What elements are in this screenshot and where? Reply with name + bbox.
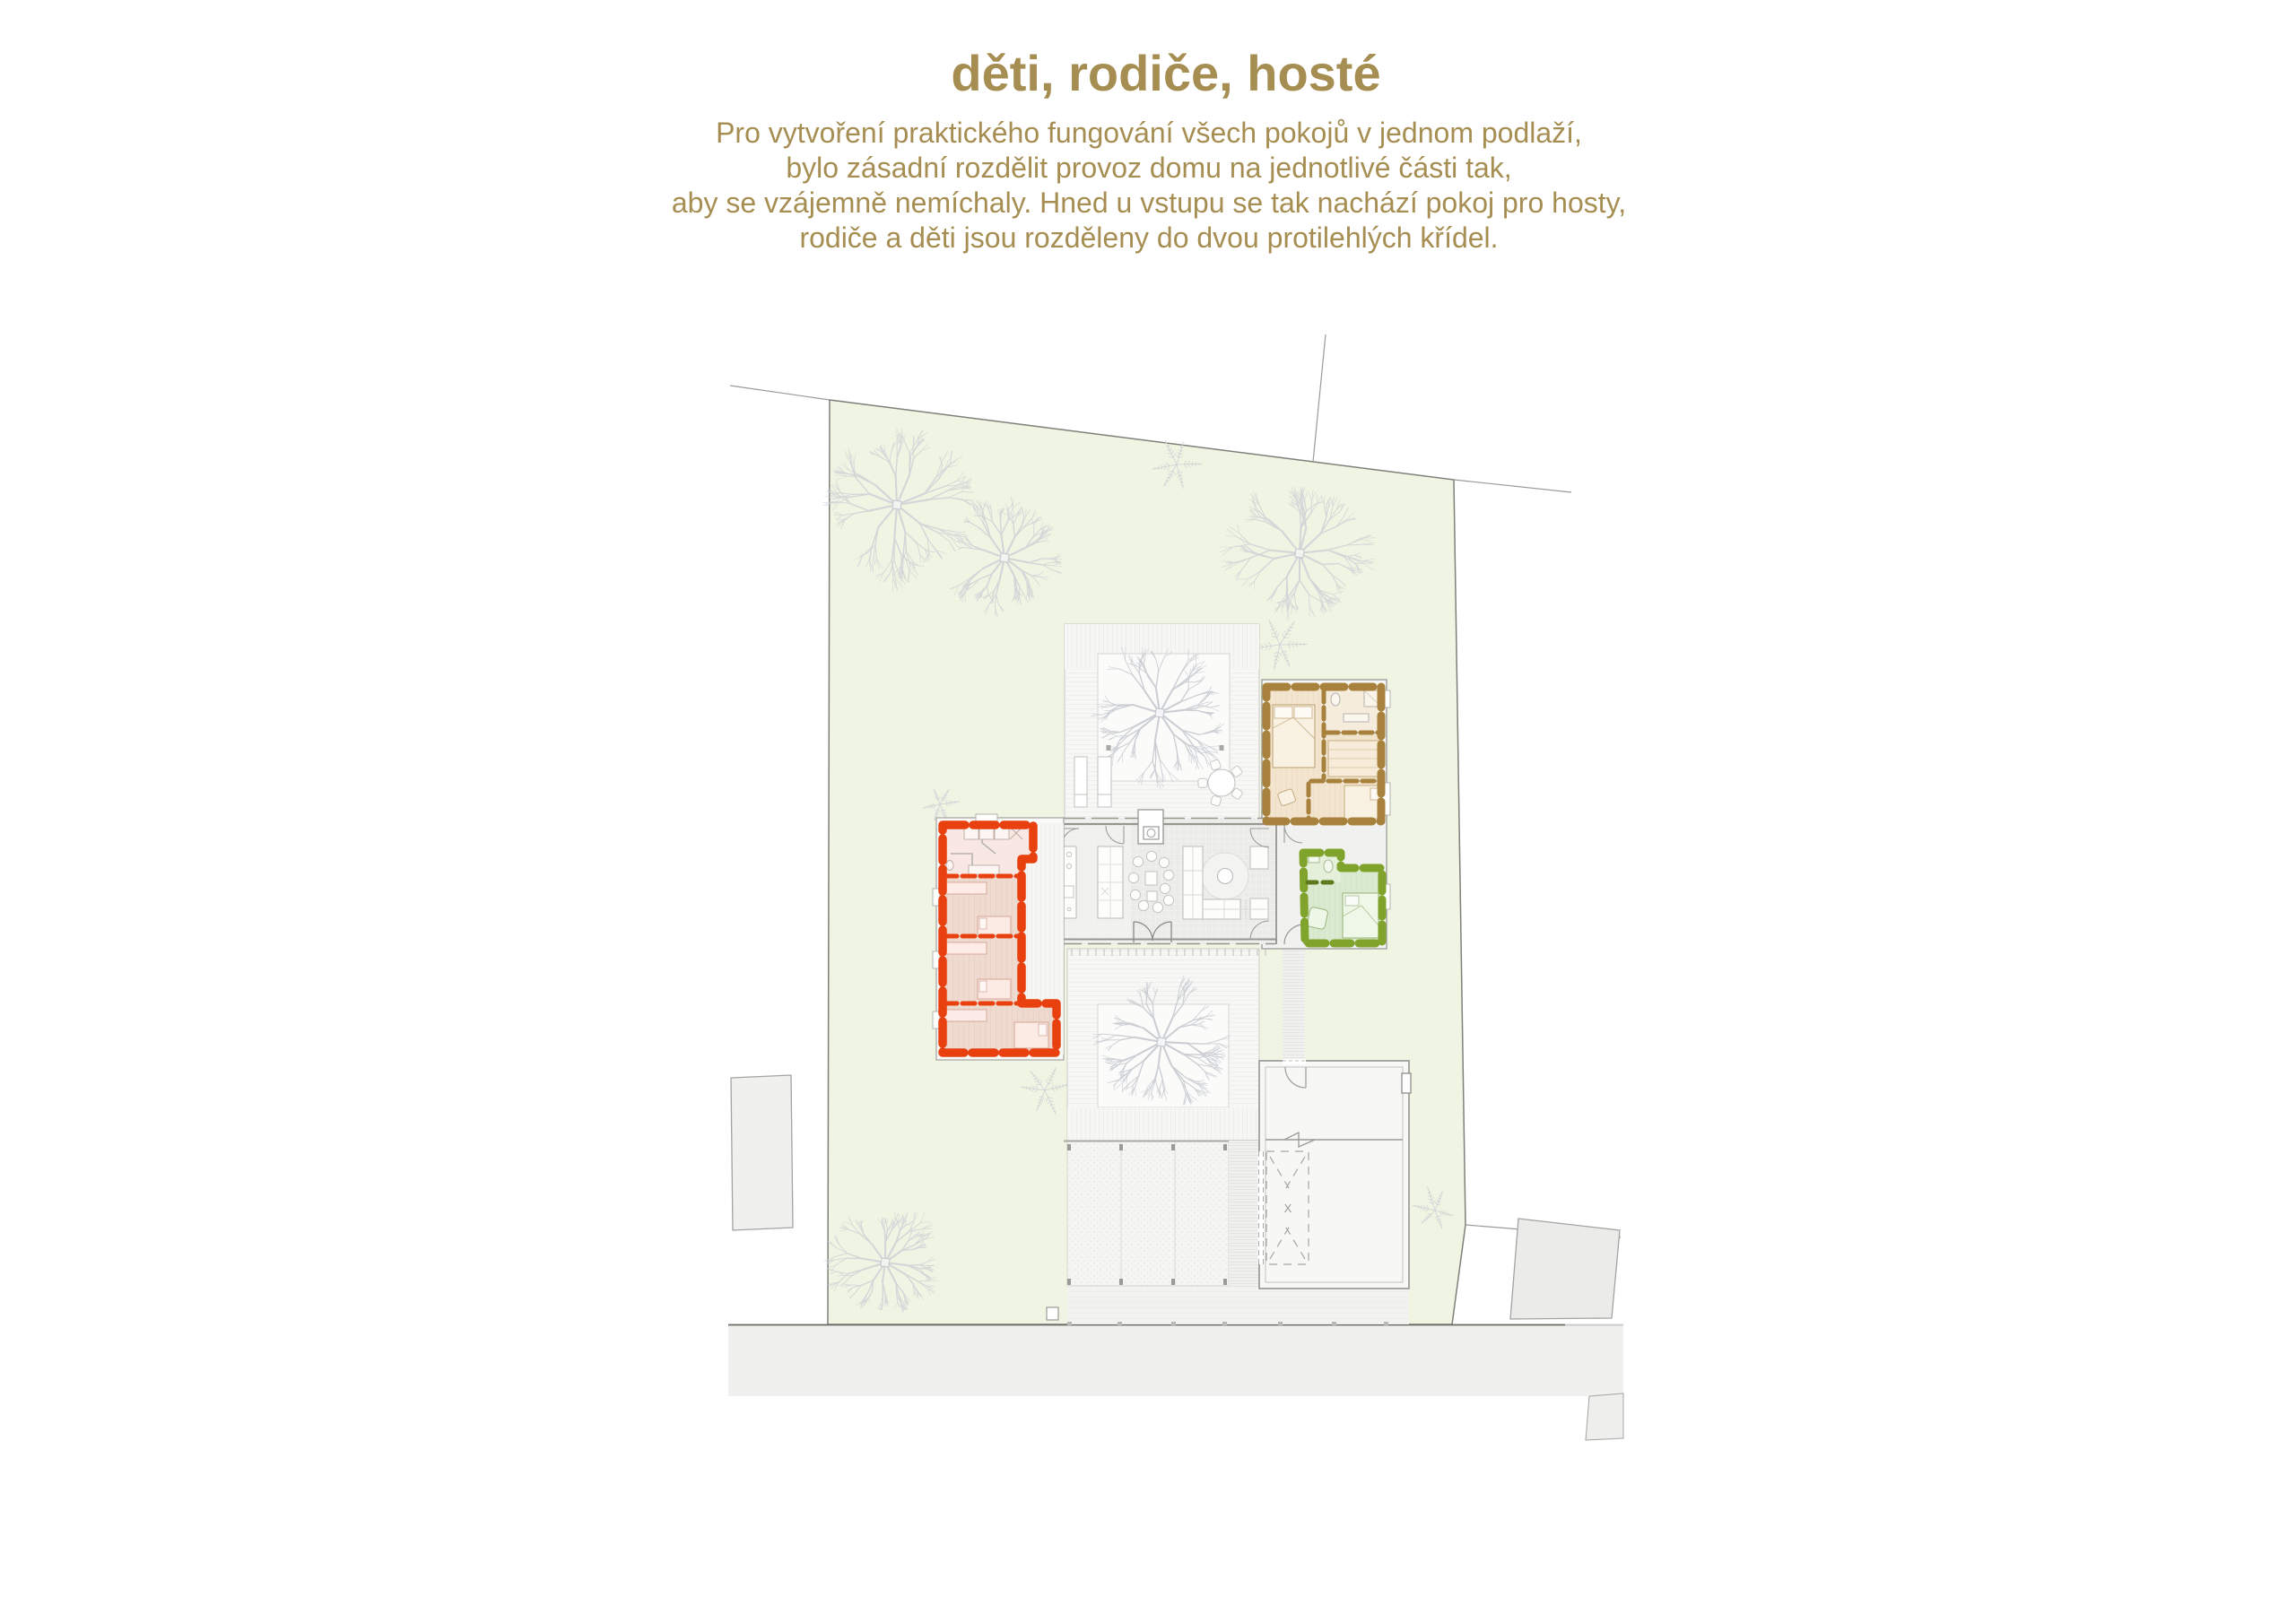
svg-text:X: X: [1284, 1202, 1292, 1215]
